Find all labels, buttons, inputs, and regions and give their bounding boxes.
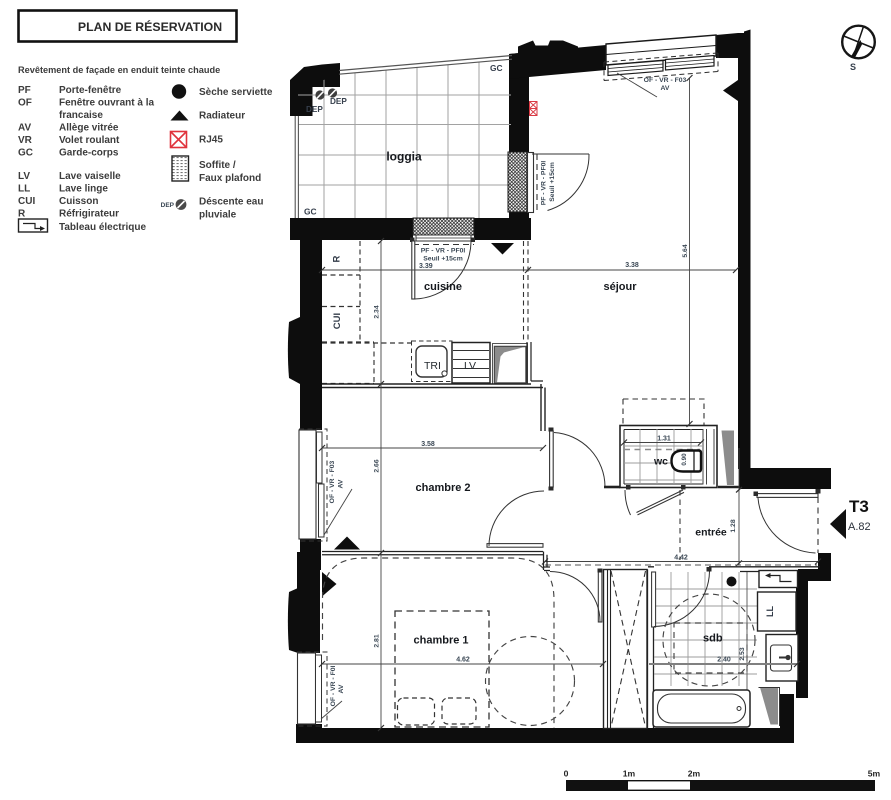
svg-text:GC: GC	[18, 148, 33, 159]
svg-text:2.34: 2.34	[374, 305, 381, 318]
svg-text:R: R	[18, 209, 26, 220]
svg-text:5.64: 5.64	[682, 244, 689, 257]
svg-text:1.28: 1.28	[730, 519, 737, 532]
svg-text:S: S	[850, 62, 856, 72]
svg-text:Tableau électrique: Tableau électrique	[59, 222, 147, 233]
svg-text:entrée: entrée	[695, 527, 727, 539]
svg-text:OF - VR - F03: OF - VR - F03	[329, 460, 336, 503]
svg-text:GC: GC	[304, 207, 317, 217]
svg-text:chambre 2: chambre 2	[415, 482, 470, 494]
svg-text:PLAN DE RÉSERVATION: PLAN DE RÉSERVATION	[78, 19, 222, 34]
svg-text:Réfrigirateur: Réfrigirateur	[59, 209, 119, 220]
svg-text:francaise: francaise	[59, 110, 103, 121]
svg-text:DEP: DEP	[161, 202, 175, 209]
svg-text:Déscente eau: Déscente eau	[199, 197, 263, 208]
svg-text:AV: AV	[661, 85, 670, 92]
svg-text:OF - VR - F03: OF - VR - F03	[644, 77, 687, 84]
svg-text:2.40: 2.40	[717, 657, 731, 664]
svg-text:0.90: 0.90	[681, 453, 688, 466]
svg-text:AV: AV	[338, 479, 345, 488]
svg-text:Porte-fenêtre: Porte-fenêtre	[59, 85, 122, 96]
svg-text:chambre 1: chambre 1	[413, 635, 468, 647]
svg-text:Seuil +15cm: Seuil +15cm	[549, 162, 556, 201]
svg-text:Seuil +15cm: Seuil +15cm	[423, 256, 462, 263]
svg-text:R: R	[332, 255, 343, 262]
svg-text:Lave linge: Lave linge	[59, 184, 108, 195]
svg-text:Sèche serviette: Sèche serviette	[199, 87, 273, 98]
svg-text:Volet roulant: Volet roulant	[59, 135, 120, 146]
svg-text:Lave vaiselle: Lave vaiselle	[59, 171, 121, 182]
svg-text:1m: 1m	[623, 769, 636, 779]
svg-text:LV: LV	[464, 360, 476, 372]
svg-text:PF - VR - PF0l: PF - VR - PF0l	[541, 161, 548, 206]
svg-text:1.31: 1.31	[657, 436, 671, 443]
svg-text:RJ45: RJ45	[199, 135, 223, 146]
svg-text:Radiateur: Radiateur	[199, 111, 245, 122]
svg-text:wc: wc	[653, 456, 668, 468]
svg-text:VR: VR	[18, 135, 33, 146]
svg-text:T3: T3	[849, 497, 869, 516]
svg-text:OF: OF	[18, 98, 32, 109]
svg-text:loggia: loggia	[386, 150, 422, 164]
svg-text:4.62: 4.62	[456, 657, 470, 664]
svg-text:3.38: 3.38	[625, 262, 639, 269]
svg-text:Revêtement de façade en enduit: Revêtement de façade en enduit teinte ch…	[18, 65, 220, 75]
svg-text:Soffite /: Soffite /	[199, 160, 236, 171]
svg-text:Allège vitrée: Allège vitrée	[59, 123, 119, 134]
svg-text:0: 0	[564, 769, 569, 779]
svg-text:DEP: DEP	[306, 105, 323, 114]
svg-text:3.58: 3.58	[421, 441, 435, 448]
svg-text:A.82: A.82	[848, 521, 871, 533]
svg-text:cuisine: cuisine	[424, 281, 462, 293]
svg-text:2m: 2m	[688, 769, 701, 779]
svg-text:PF - VR - PF0l: PF - VR - PF0l	[421, 248, 466, 255]
svg-text:AV: AV	[338, 684, 345, 693]
svg-text:Faux plafond: Faux plafond	[199, 173, 261, 184]
svg-text:GC: GC	[490, 63, 503, 73]
svg-text:Garde-corps: Garde-corps	[59, 148, 119, 159]
svg-text:3.39: 3.39	[419, 263, 433, 270]
svg-text:Cuisson: Cuisson	[59, 196, 98, 207]
svg-text:LV: LV	[18, 171, 30, 182]
svg-text:2.81: 2.81	[374, 634, 381, 647]
svg-text:DEP: DEP	[330, 97, 347, 106]
svg-text:5m: 5m	[868, 769, 881, 779]
svg-text:LL: LL	[18, 184, 30, 195]
svg-text:CUI: CUI	[18, 196, 35, 207]
svg-text:Fenêtre ouvrant à la: Fenêtre ouvrant à la	[59, 98, 154, 109]
svg-text:2.66: 2.66	[374, 459, 381, 472]
svg-text:PF: PF	[18, 85, 31, 96]
svg-text:séjour: séjour	[603, 281, 637, 293]
svg-text:4.42: 4.42	[674, 555, 688, 562]
svg-text:OF - VR - F0l: OF - VR - F0l	[330, 666, 337, 707]
svg-text:sdb: sdb	[703, 633, 723, 645]
svg-text:LL: LL	[765, 606, 775, 617]
svg-text:2.53: 2.53	[739, 647, 746, 660]
svg-text:AV: AV	[18, 123, 31, 134]
svg-text:CUI: CUI	[332, 313, 343, 329]
svg-text:TRI: TRI	[424, 360, 441, 372]
svg-text:pluviale: pluviale	[199, 210, 237, 221]
